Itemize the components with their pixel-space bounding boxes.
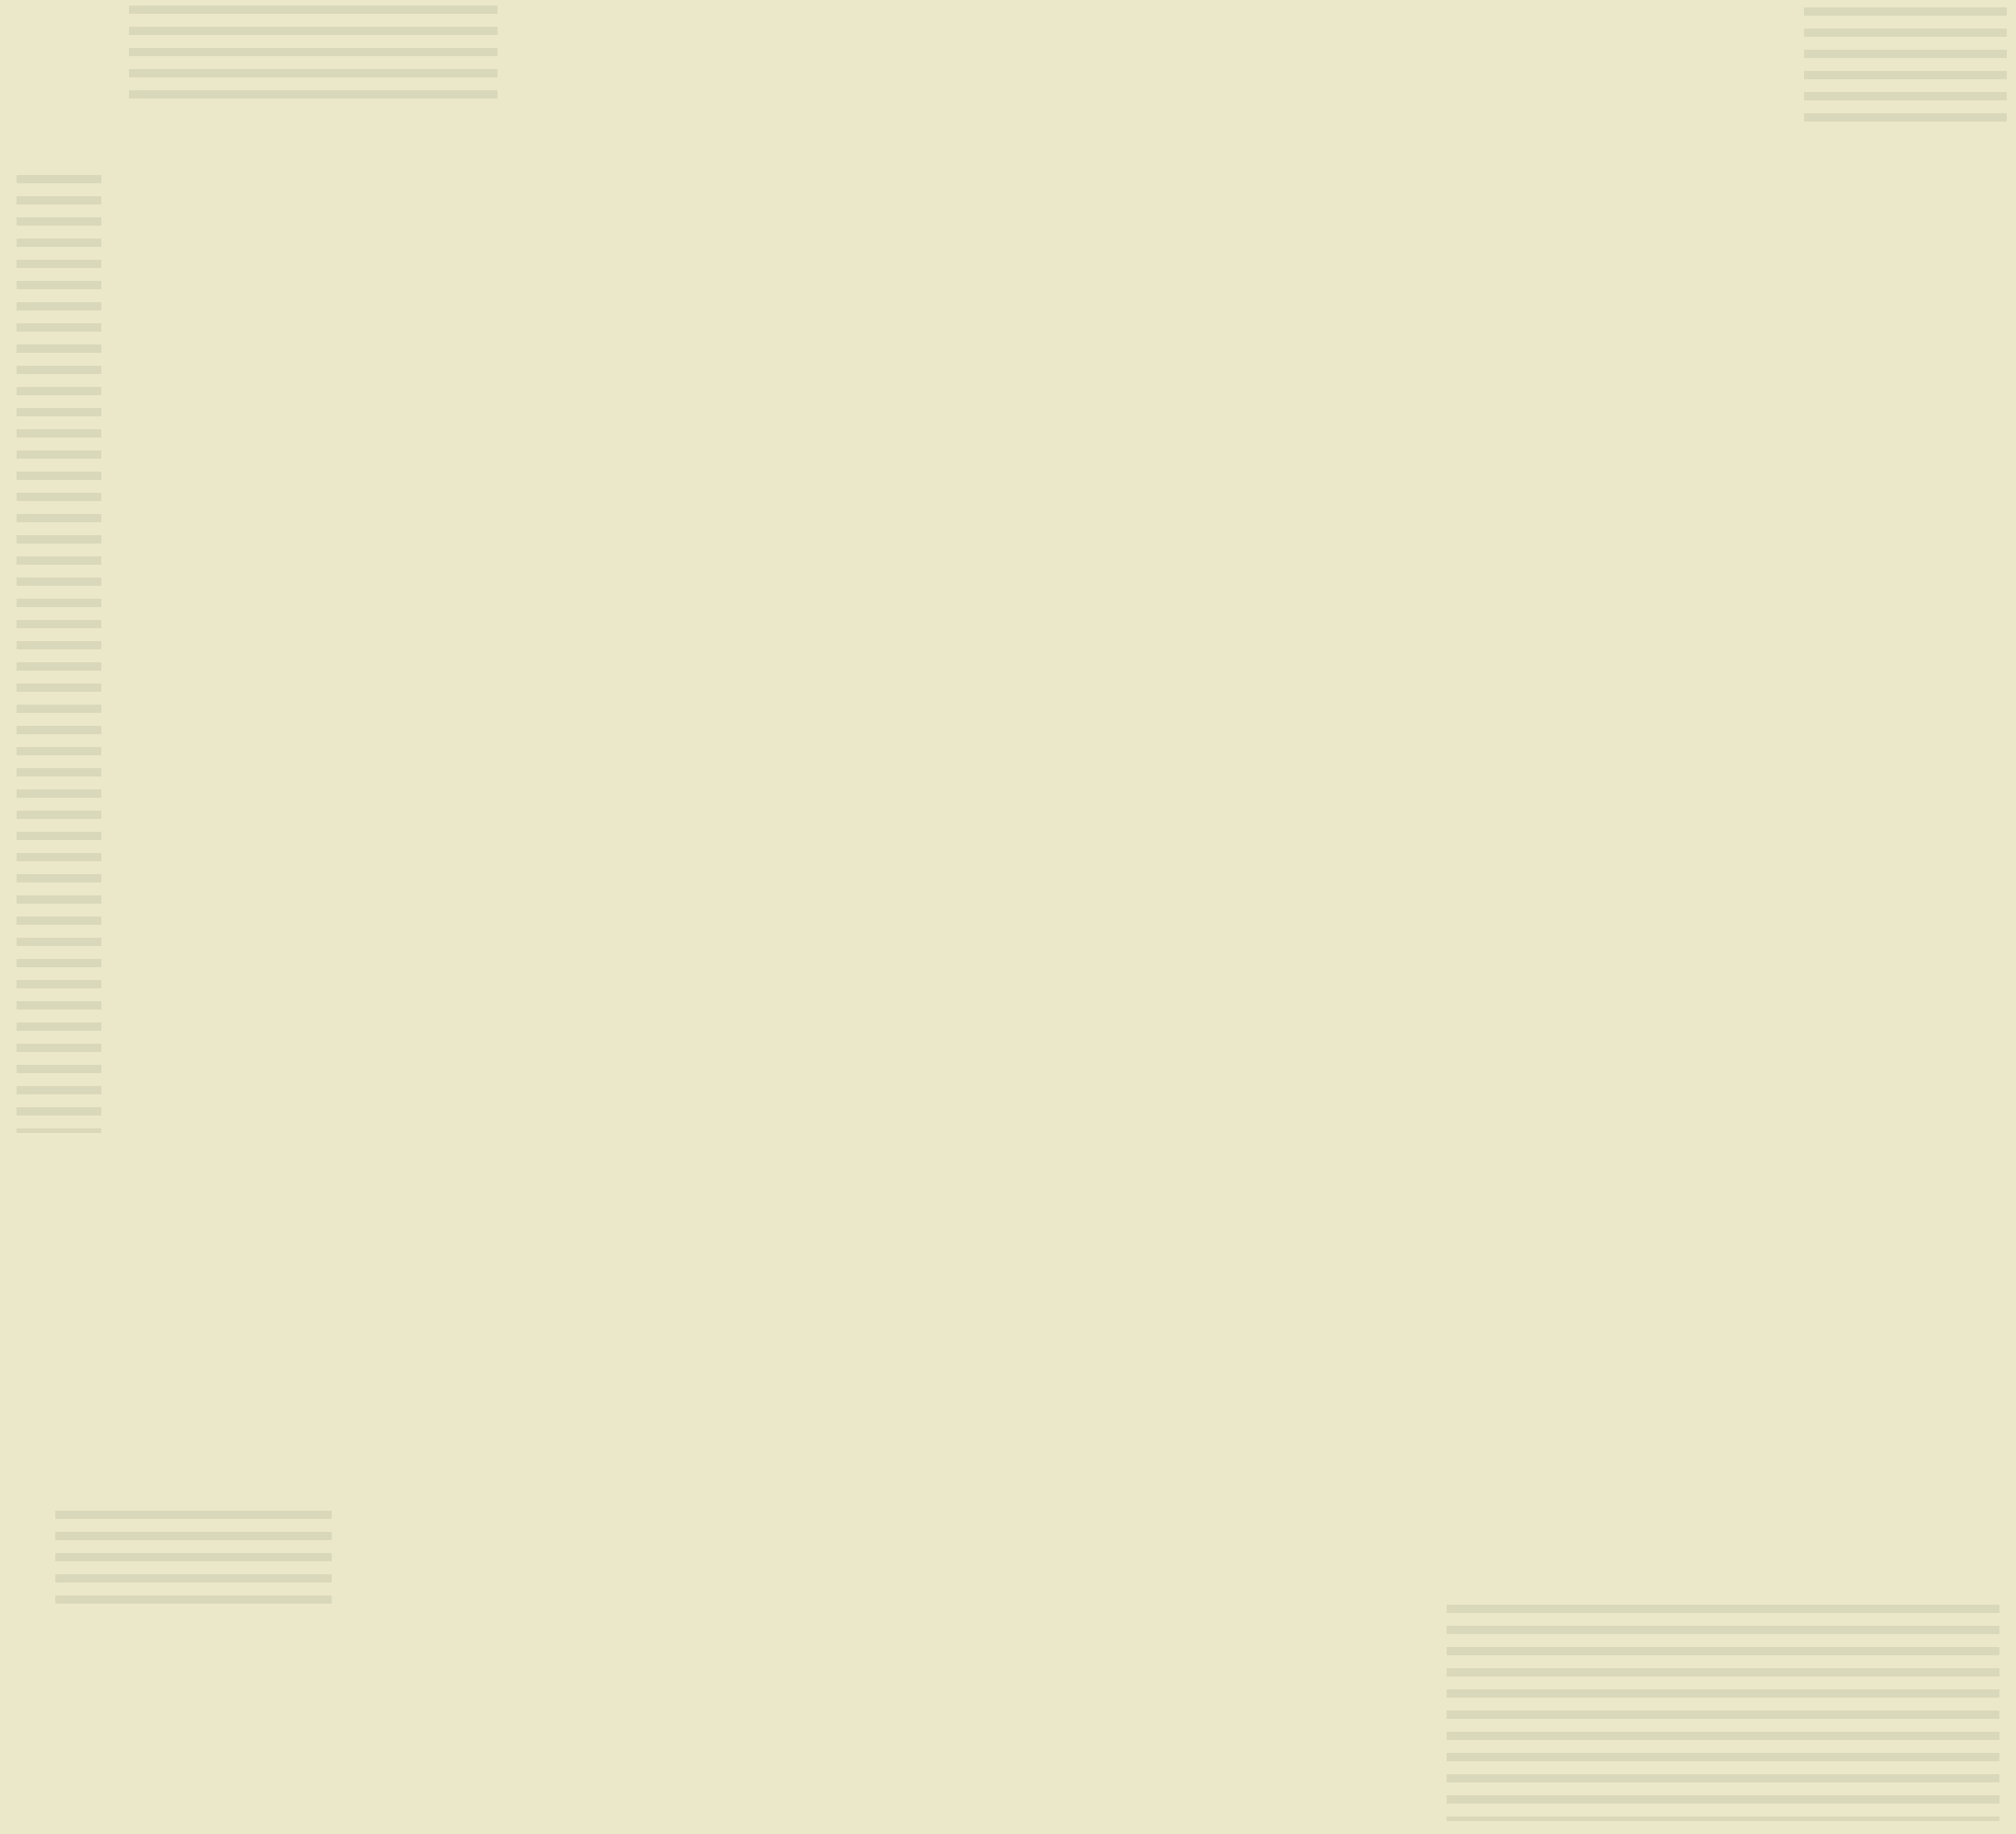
five-elements-zodiac-wheel <box>0 0 2016 1834</box>
scanned-page <box>0 0 2016 1834</box>
